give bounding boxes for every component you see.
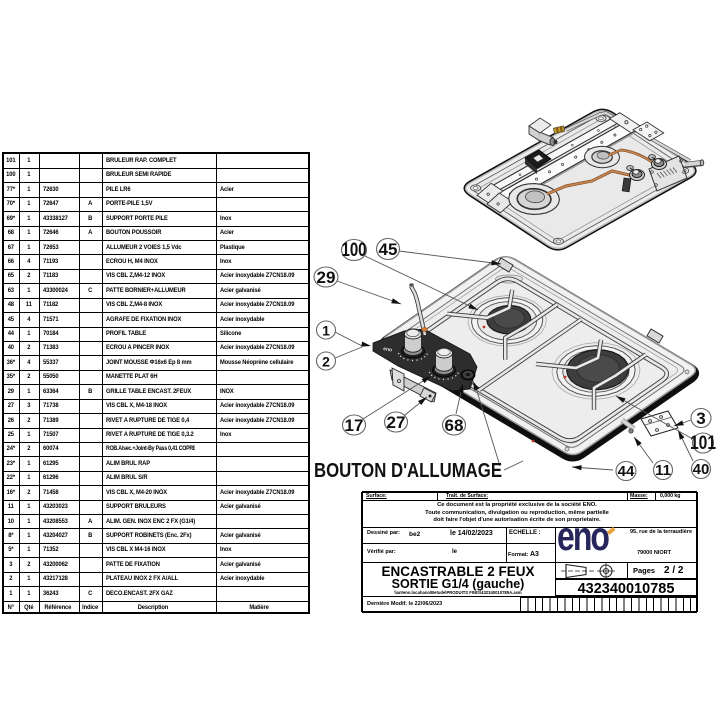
svg-text:1: 1	[322, 323, 330, 339]
svg-text:45: 45	[379, 240, 398, 259]
svg-text:100: 100	[342, 240, 367, 261]
svg-text:27: 27	[387, 413, 406, 432]
svg-text:BOUTON D'ALLUMAGE: BOUTON D'ALLUMAGE	[314, 459, 502, 482]
svg-text:68: 68	[445, 416, 464, 435]
svg-text:2: 2	[322, 354, 330, 370]
svg-text:40: 40	[693, 461, 710, 478]
svg-text:29: 29	[317, 268, 336, 287]
svg-text:44: 44	[618, 463, 635, 480]
svg-text:3: 3	[696, 409, 705, 428]
svg-text:17: 17	[345, 416, 364, 435]
svg-text:11: 11	[655, 462, 671, 479]
svg-text:101: 101	[690, 433, 716, 454]
